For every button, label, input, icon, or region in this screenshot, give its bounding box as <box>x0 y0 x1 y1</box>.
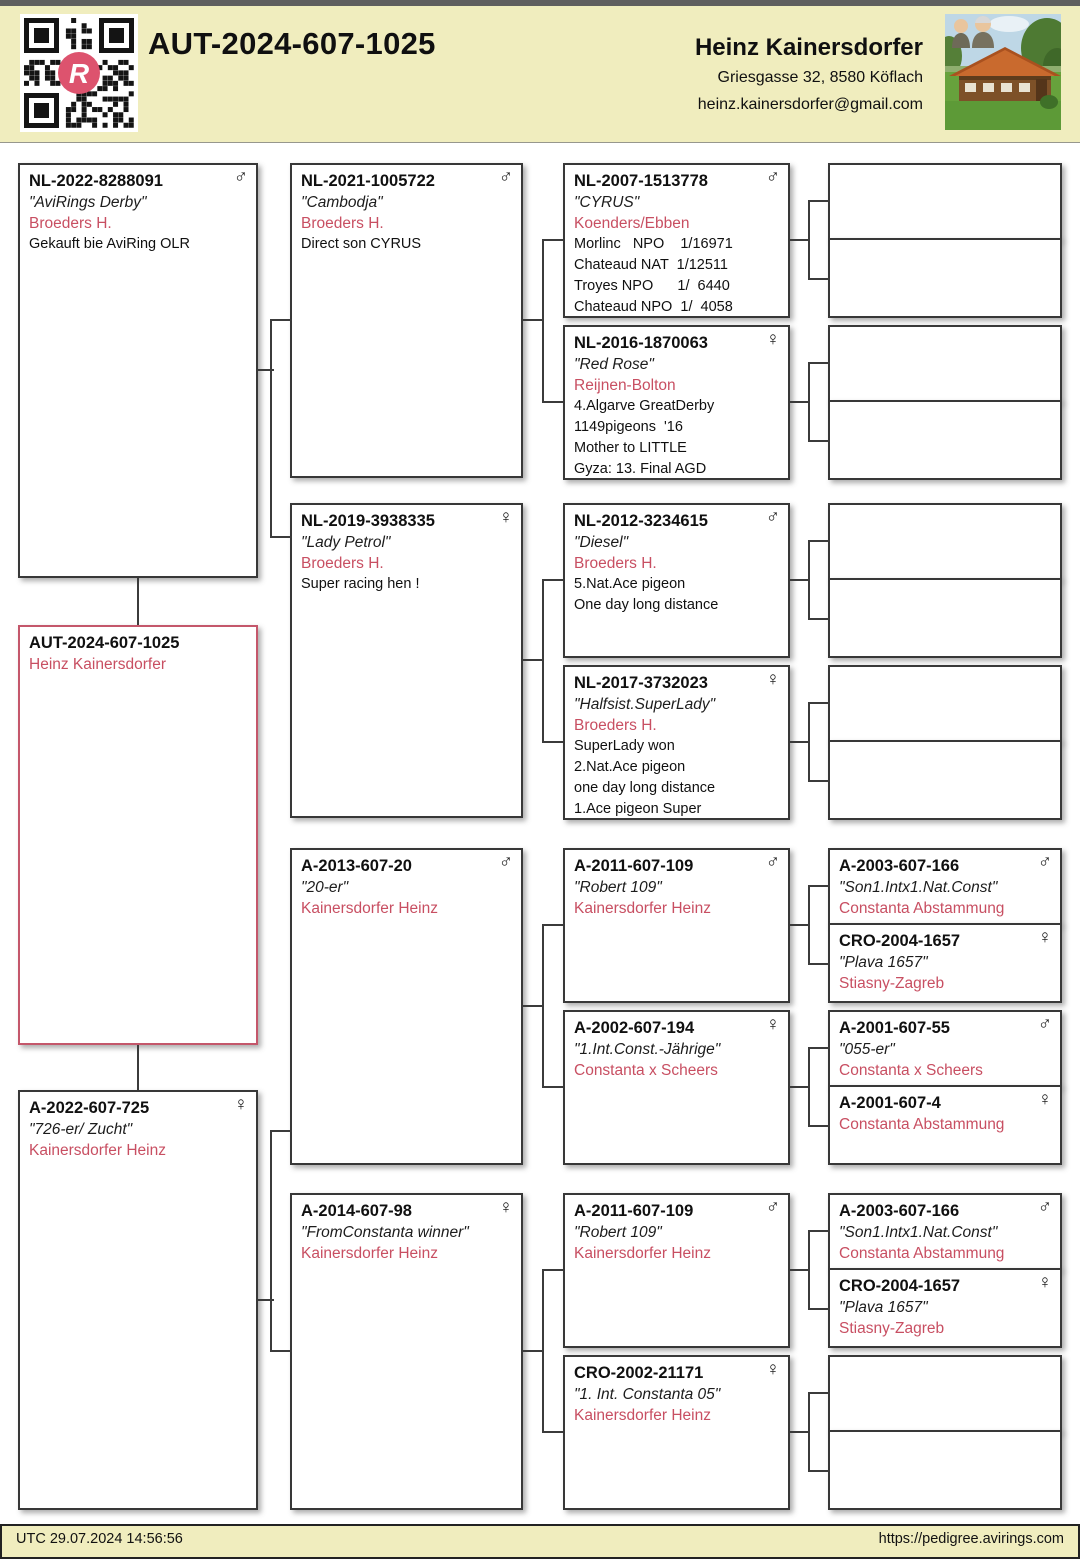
connector-line <box>808 278 830 280</box>
pigeon-name: "Diesel" <box>574 532 779 553</box>
breeder-name: Stiasny-Zagreb <box>839 973 1051 994</box>
pedigree-box-empty <box>828 238 1062 318</box>
connector-line <box>542 579 563 581</box>
connector-line <box>790 579 810 581</box>
connector-line <box>523 1005 544 1007</box>
detail-line: SuperLady won <box>574 736 779 757</box>
connector-line <box>542 1431 563 1433</box>
connector-line <box>542 401 563 403</box>
male-icon: ♂ <box>766 507 780 529</box>
breeder-name: Broeders H. <box>301 213 512 234</box>
connector-line <box>542 1086 563 1088</box>
website-url[interactable]: https://pedigree.avirings.com <box>879 1531 1064 1547</box>
connector-line <box>270 1130 292 1132</box>
page-footer: UTC 29.07.2024 14:56:56 https://pedigree… <box>0 1524 1080 1559</box>
owner-block: Heinz Kainersdorfer Griesgasse 32, 8580 … <box>695 34 923 116</box>
connector-line <box>523 1350 544 1352</box>
breeder-name: Kainersdorfer Heinz <box>301 1243 512 1264</box>
connector-line <box>808 702 830 704</box>
connector-line <box>808 1392 810 1472</box>
detail-line: 1.Ace pigeon Super <box>574 799 779 820</box>
pigeon-name: "Lady Petrol" <box>301 532 512 553</box>
breeder-name: Constanta Abstammung <box>839 898 1051 919</box>
breeder-name: Kainersdorfer Heinz <box>574 1243 779 1264</box>
detail-line: One day long distance <box>574 595 779 616</box>
detail-line: Gekauft bie AviRing OLR <box>29 234 247 255</box>
detail-line: Gyza: 13. Final AGD <box>574 459 779 480</box>
pedigree-box-robert-109-a[interactable]: ♂ A-2011-607-109 "Robert 109" Kainersdor… <box>563 848 790 1003</box>
connector-line <box>542 1269 563 1271</box>
female-icon: ♀ <box>499 1197 513 1219</box>
female-icon: ♀ <box>1038 1272 1052 1294</box>
pigeon-name: "AviRings Derby" <box>29 192 247 213</box>
connector-line <box>542 924 563 926</box>
ring-number: CRO-2004-1657 <box>839 931 1051 952</box>
ring-number: NL-2021-1005722 <box>301 171 512 192</box>
page-title: AUT-2024-607-1025 <box>148 26 436 62</box>
connector-line <box>808 362 810 442</box>
connector-line <box>790 401 810 403</box>
breeder-name: Constanta Abstammung <box>839 1114 1051 1135</box>
ring-number: NL-2007-1513778 <box>574 171 779 192</box>
connector-line <box>270 1350 292 1352</box>
connector-line <box>808 540 810 620</box>
ring-number: NL-2022-8288091 <box>29 171 247 192</box>
pedigree-box-son1-int-a[interactable]: ♂ A-2003-607-166 "Son1.Intx1.Nat.Const" … <box>828 848 1062 925</box>
male-icon: ♂ <box>1038 852 1052 874</box>
connector-line <box>270 1130 272 1352</box>
breeder-name: Kainersdorfer Heinz <box>574 898 779 919</box>
detail-line: Chateaud NAT 1/12511 <box>574 255 779 276</box>
pigeon-name: "CYRUS" <box>574 192 779 213</box>
ring-number: A-2001-607-55 <box>839 1018 1051 1039</box>
connector-line <box>808 780 830 782</box>
pedigree-box-plava-1657-b[interactable]: ♀ CRO-2004-1657 "Plava 1657" Stiasny-Zag… <box>828 1268 1062 1348</box>
detail-line: Troyes NPO 1/ 6440 <box>574 276 779 297</box>
pedigree-box-grandsire-paternal[interactable]: ♂ NL-2021-1005722 "Cambodja" Broeders H.… <box>290 163 523 478</box>
connector-line <box>790 924 810 926</box>
ring-number: A-2001-607-4 <box>839 1093 1051 1114</box>
connector-line <box>808 1470 830 1472</box>
ring-number: A-2011-607-109 <box>574 1201 779 1222</box>
pedigree-box-empty <box>828 503 1062 580</box>
page-header: R AUT-2024-607-1025 Heinz Kainersdorfer … <box>0 6 1080 143</box>
pedigree-box-empty <box>828 578 1062 658</box>
pedigree-box-empty <box>828 1355 1062 1432</box>
pedigree-box-granddam-paternal[interactable]: ♀ NL-2019-3938335 "Lady Petrol" Broeders… <box>290 503 523 818</box>
pedigree-box-mother[interactable]: ♀ A-2022-607-725 "726-er/ Zucht" Kainers… <box>18 1090 258 1510</box>
pigeon-name: "Robert 109" <box>574 1222 779 1243</box>
female-icon: ♀ <box>766 669 780 691</box>
female-icon: ♀ <box>766 1359 780 1381</box>
connector-line <box>542 1269 544 1433</box>
connector-line <box>270 319 292 321</box>
connector-line <box>808 1230 830 1232</box>
pigeon-name: "Robert 109" <box>574 877 779 898</box>
detail-line: 5.Nat.Ace pigeon <box>574 574 779 595</box>
pedigree-box-055-er[interactable]: ♂ A-2001-607-55 "055-er" Constanta x Sch… <box>828 1010 1062 1087</box>
pedigree-box-cyrus[interactable]: ♂ NL-2007-1513778 "CYRUS" Koenders/Ebben… <box>563 163 790 318</box>
breeder-name: Koenders/Ebben <box>574 213 779 234</box>
connector-line <box>808 885 810 965</box>
detail-line: 4.Algarve GreatDerby <box>574 396 779 417</box>
ring-number: A-2011-607-109 <box>574 856 779 877</box>
female-icon: ♀ <box>766 1014 780 1036</box>
connector-line <box>790 1269 810 1271</box>
breeder-name: Broeders H. <box>29 213 247 234</box>
ring-number: CRO-2002-21171 <box>574 1363 779 1384</box>
detail-line: one day long distance <box>574 778 779 799</box>
pigeon-name: "Cambodja" <box>301 192 512 213</box>
connector-line <box>790 239 810 241</box>
pedigree-box-int-constanta-05[interactable]: ♀ CRO-2002-21171 "1. Int. Constanta 05" … <box>563 1355 790 1510</box>
pedigree-box-father[interactable]: ♂ NL-2022-8288091 "AviRings Derby" Broed… <box>18 163 258 578</box>
connector-line <box>542 239 544 403</box>
detail-line: Super racing hen ! <box>301 574 512 595</box>
male-icon: ♂ <box>1038 1014 1052 1036</box>
breeder-name: Broeders H. <box>574 715 779 736</box>
qr-logo-letter: R <box>69 58 90 89</box>
connector-line <box>808 1230 810 1310</box>
connector-line <box>808 885 830 887</box>
detail-line: Chateaud NPO 1/ 4058 <box>574 297 779 318</box>
connector-line <box>808 1047 830 1049</box>
breeder-name: Broeders H. <box>301 553 512 574</box>
connector-line <box>270 536 292 538</box>
male-icon: ♂ <box>234 167 248 189</box>
loft-photo <box>945 14 1061 130</box>
owner-address: Griesgasse 32, 8580 Köflach <box>695 67 923 89</box>
connector-line <box>542 924 544 1088</box>
pedigree-box-diesel[interactable]: ♂ NL-2012-3234615 "Diesel" Broeders H. 5… <box>563 503 790 658</box>
connector-line <box>542 579 544 743</box>
generated-timestamp: UTC 29.07.2024 14:56:56 <box>16 1531 183 1547</box>
connector-line <box>808 1047 810 1127</box>
male-icon: ♂ <box>766 852 780 874</box>
breeder-name: Kainersdorfer Heinz <box>29 1140 247 1161</box>
pedigree-box-red-rose[interactable]: ♀ NL-2016-1870063 "Red Rose" Reijnen-Bol… <box>563 325 790 480</box>
pigeon-name: "726-er/ Zucht" <box>29 1119 247 1140</box>
pigeon-name: "1. Int. Constanta 05" <box>574 1384 779 1405</box>
connector-line <box>790 1431 810 1433</box>
ring-number: AUT-2024-607-1025 <box>29 633 247 654</box>
breeder-name: Heinz Kainersdorfer <box>29 654 247 675</box>
qr-code-icon: R <box>20 14 138 132</box>
ring-number: CRO-2004-1657 <box>839 1276 1051 1297</box>
connector-line <box>137 1045 139 1090</box>
breeder-name: Stiasny-Zagreb <box>839 1318 1051 1339</box>
detail-line: 1149pigeons '16 <box>574 417 779 438</box>
breeder-name: Kainersdorfer Heinz <box>574 1405 779 1426</box>
ring-number: NL-2017-3732023 <box>574 673 779 694</box>
female-icon: ♀ <box>234 1094 248 1116</box>
ring-number: A-2014-607-98 <box>301 1201 512 1222</box>
pigeon-name: "Halfsist.SuperLady" <box>574 694 779 715</box>
male-icon: ♂ <box>766 167 780 189</box>
owner-name: Heinz Kainersdorfer <box>695 34 923 62</box>
ring-number: A-2003-607-166 <box>839 1201 1051 1222</box>
pigeon-name: "Son1.Intx1.Nat.Const" <box>839 877 1051 898</box>
connector-line <box>790 1086 810 1088</box>
male-icon: ♂ <box>766 1197 780 1219</box>
connector-line <box>523 319 544 321</box>
ring-number: NL-2016-1870063 <box>574 333 779 354</box>
connector-line <box>808 618 830 620</box>
female-icon: ♀ <box>766 329 780 351</box>
pedigree-box-empty <box>828 400 1062 480</box>
ring-number: A-2002-607-194 <box>574 1018 779 1039</box>
pigeon-name: "Red Rose" <box>574 354 779 375</box>
ring-number: A-2003-607-166 <box>839 856 1051 877</box>
connector-line <box>270 319 272 538</box>
male-icon: ♂ <box>1038 1197 1052 1219</box>
breeder-name: Constanta x Scheers <box>839 1060 1051 1081</box>
pigeon-name: "20-er" <box>301 877 512 898</box>
pigeon-name: "055-er" <box>839 1039 1051 1060</box>
connector-line <box>808 362 830 364</box>
detail-line: Morlinc NPO 1/16971 <box>574 234 779 255</box>
pedigree-box-subject[interactable]: AUT-2024-607-1025 Heinz Kainersdorfer <box>18 625 258 1045</box>
connector-line <box>542 239 563 241</box>
pedigree-box-granddam-maternal[interactable]: ♀ A-2014-607-98 "FromConstanta winner" K… <box>290 1193 523 1510</box>
breeder-name: Constanta Abstammung <box>839 1243 1051 1264</box>
pedigree-box-empty <box>828 1430 1062 1510</box>
ring-number: NL-2019-3938335 <box>301 511 512 532</box>
ring-number: NL-2012-3234615 <box>574 511 779 532</box>
ring-number: A-2013-607-20 <box>301 856 512 877</box>
connector-line <box>808 540 830 542</box>
male-icon: ♂ <box>499 852 513 874</box>
owner-email: heinz.kainersdorfer@gmail.com <box>695 94 923 116</box>
male-icon: ♂ <box>499 167 513 189</box>
pedigree-box-int-const-jaehrige[interactable]: ♀ A-2002-607-194 "1.Int.Const.-Jährige" … <box>563 1010 790 1165</box>
connector-line <box>808 1308 830 1310</box>
breeder-name: Reijnen-Bolton <box>574 375 779 396</box>
female-icon: ♀ <box>1038 1089 1052 1111</box>
detail-line: 2.Nat.Ace pigeon <box>574 757 779 778</box>
connector-line <box>542 741 563 743</box>
connector-line <box>808 963 830 965</box>
pedigree-box-plava-1657-a[interactable]: ♀ CRO-2004-1657 "Plava 1657" Stiasny-Zag… <box>828 923 1062 1003</box>
pedigree-page: R AUT-2024-607-1025 Heinz Kainersdorfer … <box>0 0 1080 1559</box>
female-icon: ♀ <box>1038 927 1052 949</box>
pigeon-name: "Plava 1657" <box>839 952 1051 973</box>
pigeon-name: "Plava 1657" <box>839 1297 1051 1318</box>
ring-number: A-2022-607-725 <box>29 1098 247 1119</box>
breeder-name: Constanta x Scheers <box>574 1060 779 1081</box>
pedigree-box-empty <box>828 665 1062 742</box>
connector-line <box>523 659 544 661</box>
connector-line <box>808 1392 830 1394</box>
detail-line: Mother to LITTLE <box>574 438 779 459</box>
detail-line: Direct son CYRUS <box>301 234 512 255</box>
pedigree-box-empty <box>828 163 1062 240</box>
pedigree-box-empty <box>828 740 1062 820</box>
pedigree-box-a-2001-607-4[interactable]: ♀ A-2001-607-4 Constanta Abstammung <box>828 1085 1062 1165</box>
pedigree-box-robert-109-b[interactable]: ♂ A-2011-607-109 "Robert 109" Kainersdor… <box>563 1193 790 1348</box>
pigeon-name: "FromConstanta winner" <box>301 1222 512 1243</box>
pedigree-box-empty <box>828 325 1062 402</box>
pedigree-box-grandsire-maternal[interactable]: ♂ A-2013-607-20 "20-er" Kainersdorfer He… <box>290 848 523 1165</box>
connector-line <box>808 200 810 280</box>
pigeon-name: "1.Int.Const.-Jährige" <box>574 1039 779 1060</box>
breeder-name: Kainersdorfer Heinz <box>301 898 512 919</box>
connector-line <box>808 440 830 442</box>
connector-line <box>808 702 810 782</box>
pigeon-name: "Son1.Intx1.Nat.Const" <box>839 1222 1051 1243</box>
breeder-name: Broeders H. <box>574 553 779 574</box>
connector-line <box>790 741 810 743</box>
connector-line <box>808 1125 830 1127</box>
connector-line <box>137 578 139 625</box>
female-icon: ♀ <box>499 507 513 529</box>
pedigree-box-son1-int-b[interactable]: ♂ A-2003-607-166 "Son1.Intx1.Nat.Const" … <box>828 1193 1062 1270</box>
pedigree-box-halfsist-superlady[interactable]: ♀ NL-2017-3732023 "Halfsist.SuperLady" B… <box>563 665 790 820</box>
connector-line <box>808 200 830 202</box>
